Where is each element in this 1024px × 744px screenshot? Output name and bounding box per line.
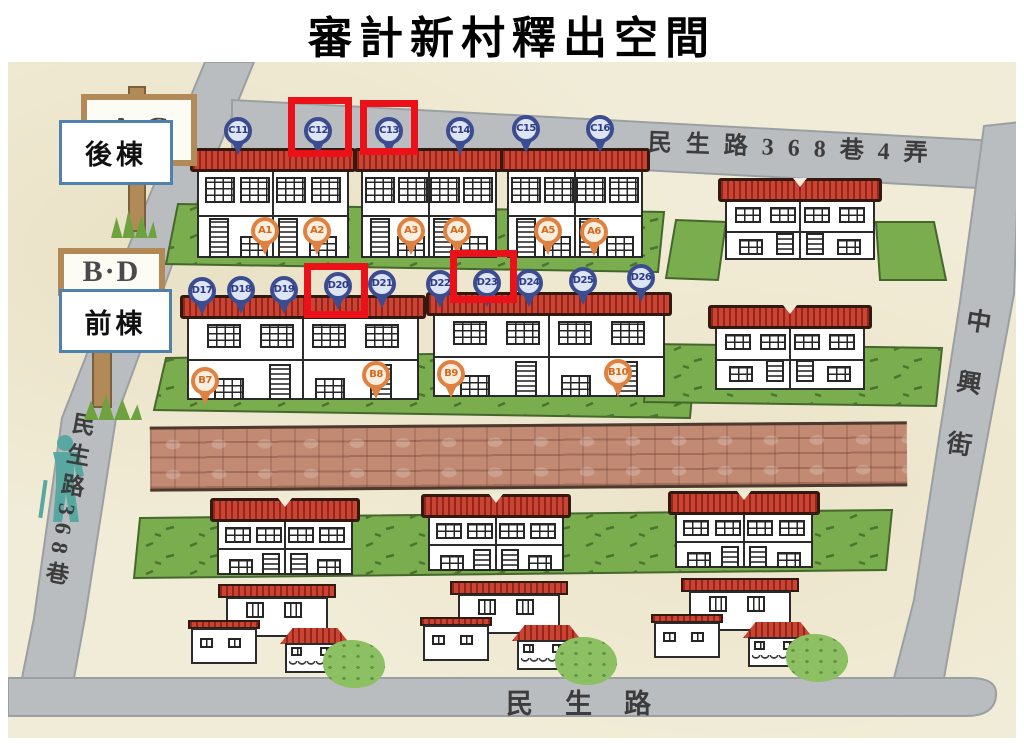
house-cluster-3 <box>651 578 856 683</box>
map-pin-C15: C15 <box>512 115 540 159</box>
map-pin-A5: A5 <box>534 217 562 261</box>
map-pin-B7: B7 <box>191 367 219 411</box>
pin-head: D24 <box>515 269 543 297</box>
window <box>709 596 727 612</box>
map-pin-D24: D24 <box>515 269 543 313</box>
pin-head: D26 <box>627 264 655 292</box>
window <box>506 321 540 345</box>
pin-head: C15 <box>512 115 540 143</box>
window <box>516 599 534 615</box>
pin-head: D21 <box>368 270 396 298</box>
window <box>837 239 861 255</box>
floor <box>435 316 663 359</box>
floor <box>430 518 562 545</box>
map-pin-B8: B8 <box>362 361 390 405</box>
window <box>240 177 270 203</box>
window <box>436 523 462 539</box>
pin-head: A2 <box>303 217 331 245</box>
building-body <box>217 522 353 575</box>
floor <box>727 229 873 255</box>
window <box>205 177 235 203</box>
floor <box>219 522 351 549</box>
window <box>463 177 493 203</box>
window <box>311 177 341 203</box>
window <box>365 324 399 348</box>
pin-head: A1 <box>251 217 279 245</box>
door <box>766 360 784 382</box>
highlight-box-C12 <box>288 97 352 157</box>
building-body <box>507 172 643 258</box>
map-pin-A1: A1 <box>251 217 279 261</box>
page-title: 審計新村釋出空間 <box>0 2 1024 66</box>
map-pin-C16: C16 <box>586 115 614 159</box>
village-map: 民生路368巷4弄 民生路368巷 中興街 民生路 A·C B·D 後棟 前棟 … <box>8 62 1016 738</box>
window <box>460 635 473 645</box>
building-body <box>675 515 813 568</box>
window <box>256 527 282 543</box>
door <box>209 218 229 258</box>
building-back-3 <box>500 148 650 258</box>
window <box>291 647 302 656</box>
pin-head: B9 <box>437 360 465 388</box>
map-pin-D25: D25 <box>569 267 597 311</box>
window <box>207 324 241 348</box>
door <box>501 549 519 571</box>
window <box>511 177 541 203</box>
house-cluster-1 <box>188 584 393 689</box>
window <box>839 207 865 223</box>
window <box>611 321 645 345</box>
building-lower-3 <box>668 491 820 568</box>
window <box>794 334 820 350</box>
building-body <box>428 518 564 571</box>
map-pin-D26: D26 <box>627 264 655 308</box>
window <box>365 177 395 203</box>
floor <box>677 515 811 542</box>
door <box>370 218 390 258</box>
window <box>284 602 302 618</box>
map-pin-B10: B10 <box>604 359 632 403</box>
roof <box>210 498 360 522</box>
building-body <box>715 329 865 390</box>
window <box>229 559 253 575</box>
window <box>683 520 709 536</box>
window <box>687 552 711 568</box>
window <box>228 638 241 648</box>
door <box>262 553 280 575</box>
door <box>796 360 814 382</box>
pin-head: A4 <box>443 217 471 245</box>
window <box>544 177 574 203</box>
floor <box>363 172 495 218</box>
window <box>440 555 464 571</box>
floor <box>509 172 641 218</box>
window <box>829 334 855 350</box>
map-pin-C11: C11 <box>224 117 252 161</box>
pin-head: D17 <box>188 277 216 305</box>
floor <box>717 356 863 382</box>
label-back-row: 後棟 <box>59 120 173 185</box>
door <box>806 233 824 255</box>
roof <box>681 578 799 592</box>
window <box>558 321 592 345</box>
pin-head: C14 <box>446 117 474 145</box>
window <box>576 177 606 203</box>
door <box>749 546 767 568</box>
pin-head: C16 <box>586 115 614 143</box>
pin-head: D19 <box>270 276 298 304</box>
building-lower-2 <box>421 494 571 571</box>
building-mid-right <box>708 305 872 390</box>
door <box>515 361 537 397</box>
map-pin-D21: D21 <box>368 270 396 314</box>
pin-head: D25 <box>569 267 597 295</box>
house-cluster-2 <box>420 581 625 686</box>
map-pin-A3: A3 <box>397 217 425 261</box>
window <box>225 527 251 543</box>
window <box>315 378 345 400</box>
street-label-bottom: 民生路 <box>506 682 683 721</box>
pin-head: B10 <box>604 359 632 387</box>
door <box>290 553 308 575</box>
pin-head: D18 <box>227 276 255 304</box>
window <box>246 602 264 618</box>
pin-head: A6 <box>580 218 608 246</box>
window <box>609 177 639 203</box>
window <box>754 641 765 650</box>
window <box>398 177 428 203</box>
map-pin-D17: D17 <box>188 277 216 321</box>
window <box>260 324 294 348</box>
window <box>288 527 314 543</box>
window <box>523 644 534 653</box>
pin-head: A3 <box>397 217 425 245</box>
window <box>432 635 445 645</box>
brick-path <box>150 421 907 491</box>
window <box>725 334 751 350</box>
pin-head: B8 <box>362 361 390 389</box>
window <box>663 632 676 642</box>
window <box>729 366 753 382</box>
window <box>770 207 796 223</box>
floor <box>509 218 641 258</box>
roof <box>718 178 882 202</box>
floor <box>199 172 347 218</box>
building-body <box>361 172 497 258</box>
highlight-box-D20 <box>304 263 368 318</box>
highlight-box-C13 <box>360 100 418 155</box>
window <box>430 177 460 203</box>
map-pin-D19: D19 <box>270 276 298 320</box>
roof <box>218 584 336 598</box>
building-lower-1 <box>210 498 360 575</box>
map-pin-A2: A2 <box>303 217 331 261</box>
floor <box>430 545 562 571</box>
door <box>269 364 291 400</box>
window <box>528 555 552 571</box>
pin-head: A5 <box>534 217 562 245</box>
window <box>747 520 773 536</box>
window <box>561 375 591 397</box>
floor <box>727 202 873 229</box>
door <box>721 546 739 568</box>
window <box>739 239 763 255</box>
door <box>473 549 491 571</box>
building-back-2 <box>354 148 504 258</box>
window <box>530 523 556 539</box>
map-pin-A6: A6 <box>580 218 608 262</box>
window <box>804 207 830 223</box>
roof <box>450 581 568 595</box>
roof <box>421 494 571 518</box>
window <box>760 334 786 350</box>
window <box>312 324 346 348</box>
bush <box>323 640 385 688</box>
window <box>747 596 765 612</box>
map-pin-B9: B9 <box>437 360 465 404</box>
map-pin-C14: C14 <box>446 117 474 161</box>
door <box>278 218 298 258</box>
roof <box>668 491 820 515</box>
window <box>319 527 345 543</box>
window <box>715 520 741 536</box>
pin-head: C11 <box>224 117 252 145</box>
bush <box>555 637 617 685</box>
highlight-box-D23 <box>450 250 517 303</box>
window <box>691 632 704 642</box>
window <box>317 559 341 575</box>
window <box>276 177 306 203</box>
roof <box>708 305 872 329</box>
floor <box>717 329 863 356</box>
floor <box>219 549 351 575</box>
window <box>467 523 493 539</box>
bush <box>786 634 848 682</box>
map-pin-D18: D18 <box>227 276 255 320</box>
floor <box>677 542 811 568</box>
window <box>200 638 213 648</box>
floor <box>189 319 417 362</box>
window <box>453 321 487 345</box>
window <box>827 366 851 382</box>
window <box>777 552 801 568</box>
door <box>776 233 794 255</box>
building-ne <box>718 178 882 260</box>
window <box>606 236 634 258</box>
building-body <box>725 202 875 260</box>
window <box>499 523 525 539</box>
window <box>779 520 805 536</box>
window <box>478 599 496 615</box>
window <box>735 207 761 223</box>
pin-head: B7 <box>191 367 219 395</box>
label-front-row: 前棟 <box>59 289 172 353</box>
